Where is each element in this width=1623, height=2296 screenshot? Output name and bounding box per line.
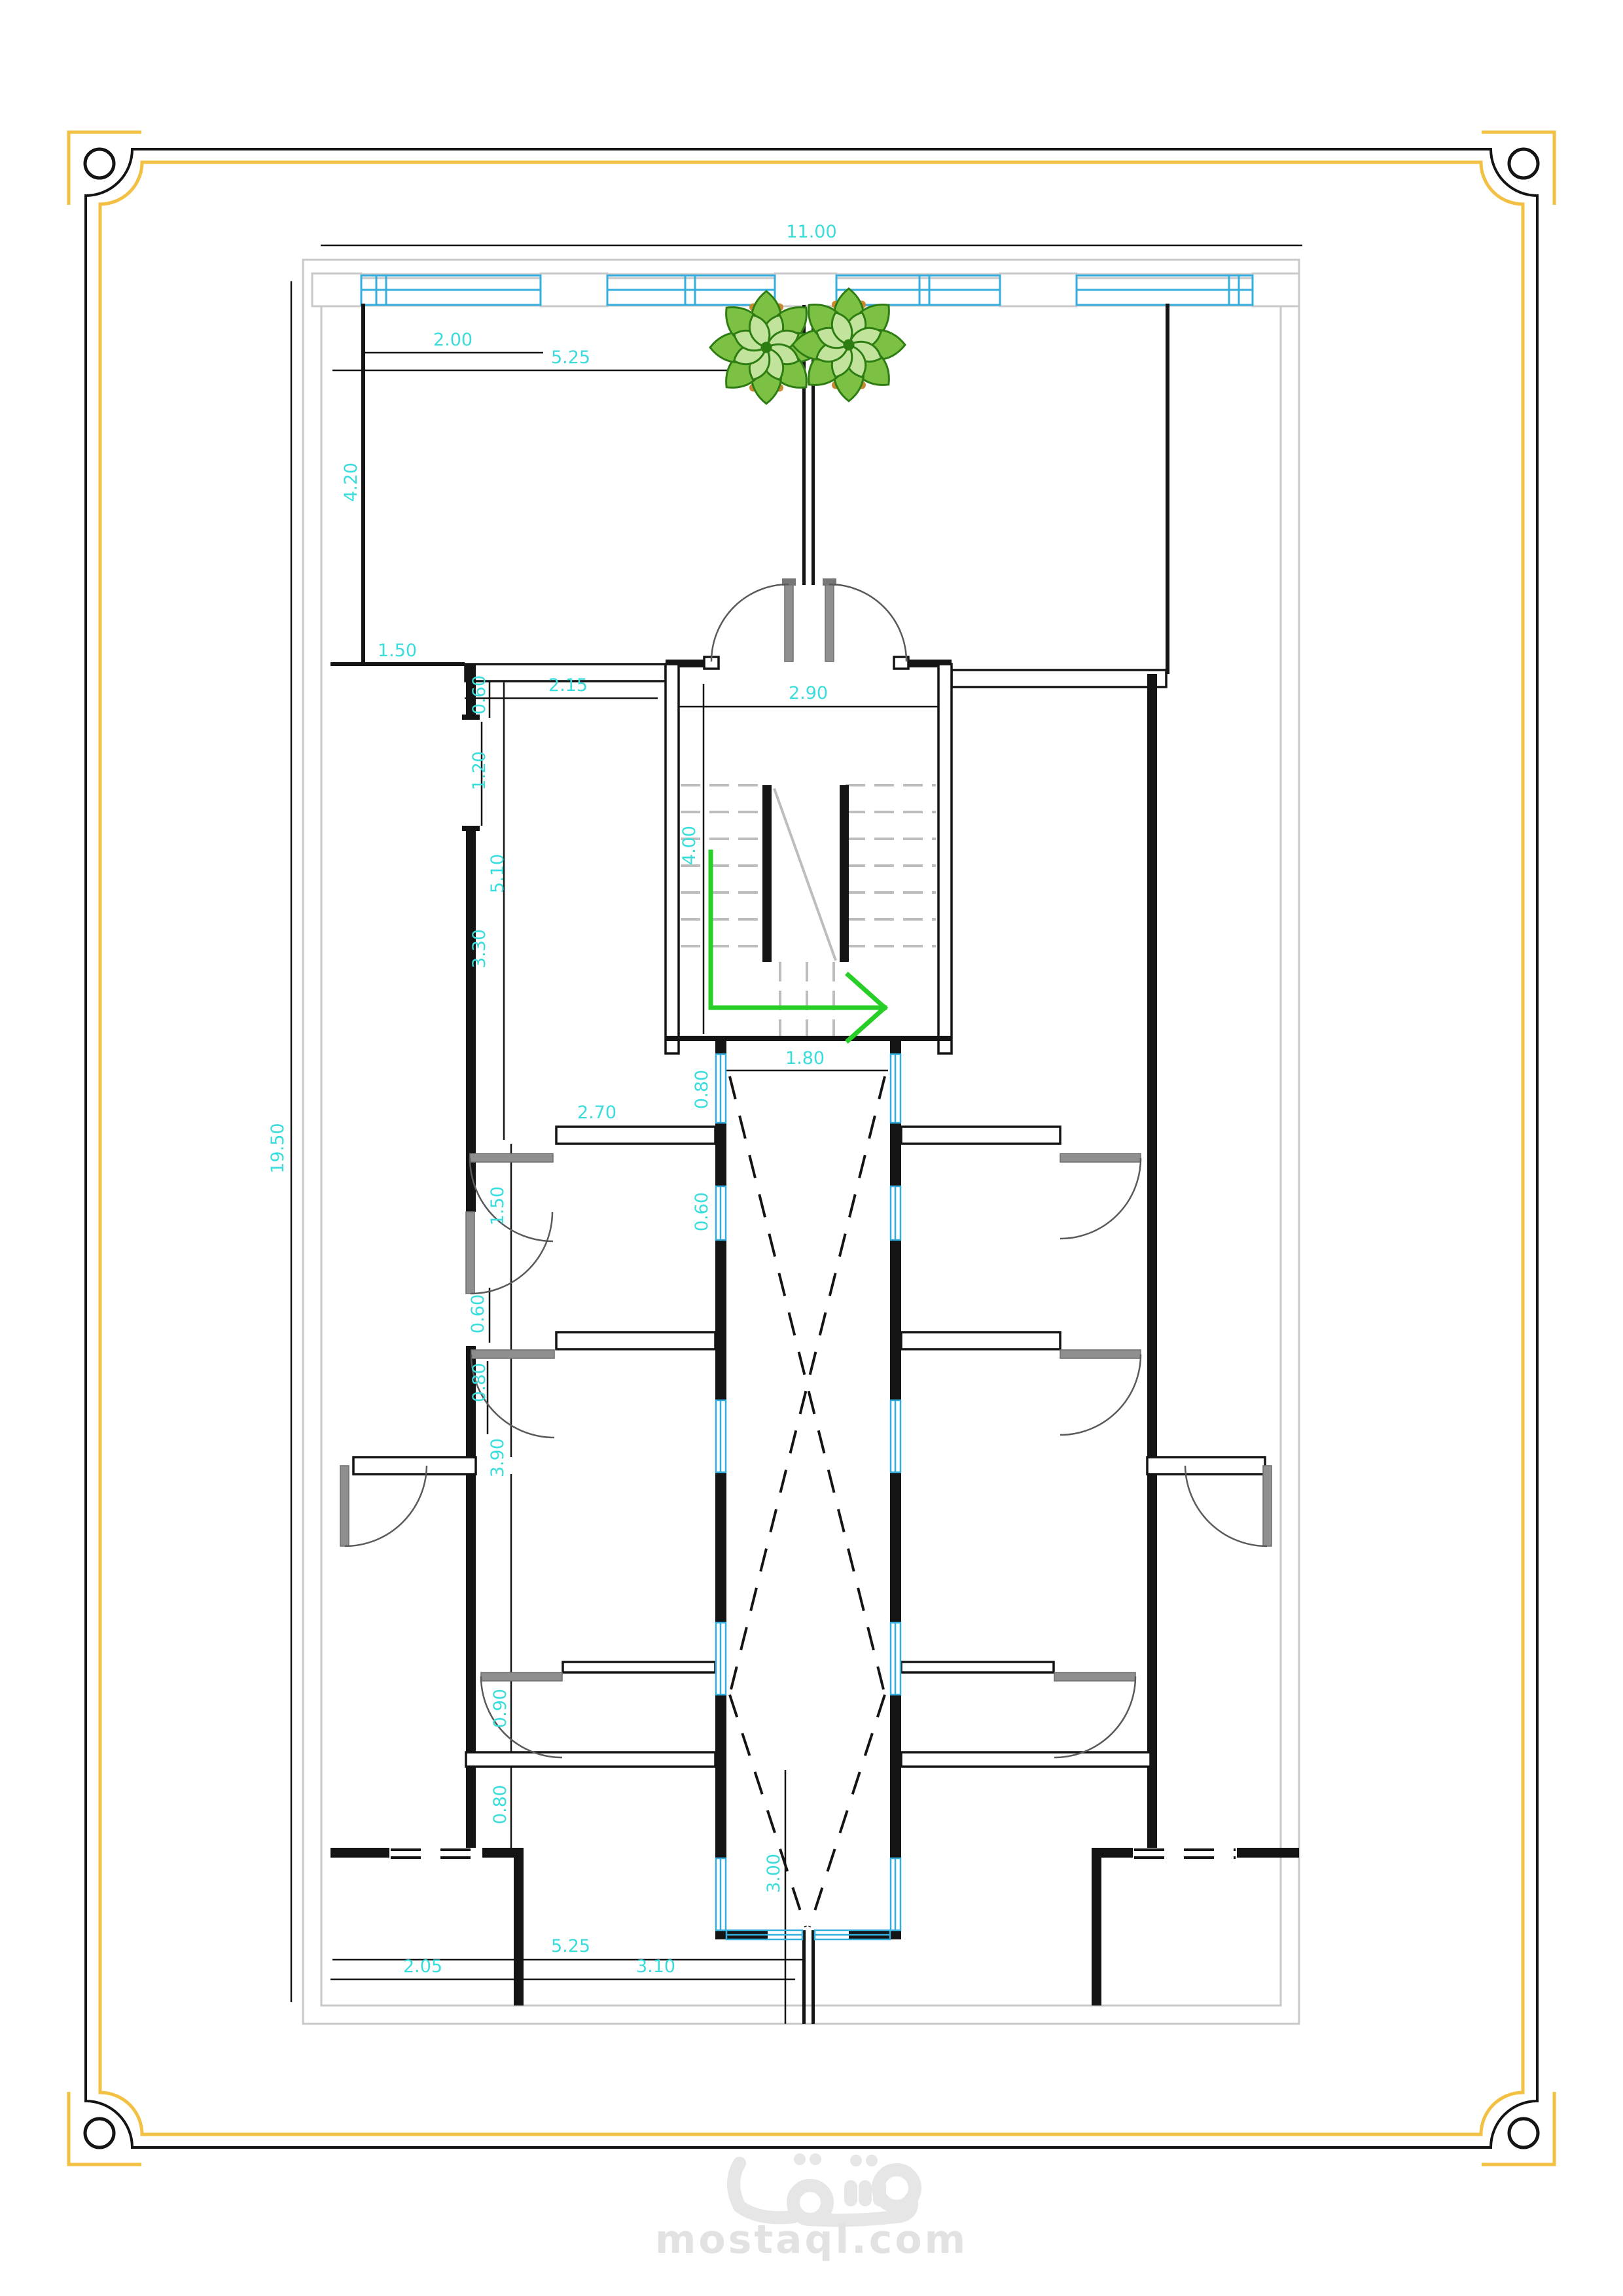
plant — [793, 289, 905, 401]
wall-pier — [312, 274, 361, 306]
dimension-label: 0.60 — [692, 1192, 712, 1231]
dimension-label: 3.30 — [469, 929, 490, 968]
shaft-vents — [716, 1054, 901, 1939]
stair-void-rail-right — [840, 785, 849, 962]
dimension-label: 19.50 — [268, 1123, 288, 1173]
stair-void-rail-left — [762, 785, 772, 962]
border-gold-corner-tl — [69, 132, 141, 205]
dimension-label: 5.25 — [551, 347, 590, 368]
dimension-label: 1.80 — [785, 1048, 825, 1069]
entrance-double-door — [711, 578, 906, 662]
dimension-label: 3.00 — [764, 1854, 784, 1893]
dimension-label: 0.80 — [490, 1785, 510, 1824]
watermark-site-text: mostaql.com — [0, 2217, 1623, 2263]
dimension-label: 2.90 — [789, 683, 828, 703]
wall-pier — [541, 274, 607, 306]
stair-break-line — [774, 788, 836, 961]
staircase — [681, 785, 936, 1036]
dimension-label: 2.70 — [577, 1103, 616, 1123]
dimension-labels: 11.002.005.251.502.152.901.802.705.252.0… — [268, 222, 837, 1977]
interior-door — [466, 1154, 562, 1757]
mostaql-arabic-logo-icon — [734, 2153, 915, 2220]
interior-door — [1054, 1154, 1141, 1757]
exterior-side-door — [340, 1466, 1272, 1546]
floor-plan-canvas: 11.002.005.251.502.152.901.802.705.252.0… — [0, 0, 1623, 2296]
dimension-label: 1.50 — [378, 641, 417, 661]
dimension-label: 1.50 — [488, 1186, 508, 1226]
dimension-label: 11.00 — [786, 222, 836, 242]
dimension-label: 0.80 — [469, 1363, 490, 1402]
border-corner-ring-bl — [85, 2119, 114, 2147]
walls — [330, 304, 1299, 2024]
border-gold-corner-tr — [1482, 132, 1554, 205]
dimension-label: 0.90 — [490, 1689, 510, 1728]
dimension-label: 3.90 — [488, 1438, 508, 1477]
dimension-label: 0.80 — [692, 1070, 712, 1109]
border-gold-corner-bl — [69, 2092, 141, 2164]
dimension-label: 3.10 — [636, 1956, 675, 1977]
border-corner-ring-tl — [85, 149, 114, 178]
dimension-label: 5.10 — [488, 854, 508, 893]
dimension-label: 5.25 — [551, 1936, 590, 1956]
dimension-label: 1.20 — [469, 751, 490, 790]
dimension-label: 0.60 — [469, 675, 490, 715]
wall-pier — [1253, 274, 1299, 306]
light-well-x — [730, 1076, 885, 1927]
dimension-label: 2.05 — [403, 1956, 442, 1977]
border-corner-ring-br — [1509, 2119, 1538, 2147]
dimension-label: 4.20 — [341, 463, 361, 502]
dimension-label: 0.60 — [468, 1294, 488, 1333]
dimension-label: 2.15 — [548, 675, 588, 696]
border-gold-corner-br — [1482, 2092, 1554, 2164]
border-corner-ring-tr — [1509, 149, 1538, 178]
wall-pier — [775, 274, 836, 306]
dimension-label: 2.00 — [433, 330, 473, 350]
wall-pier — [1000, 274, 1077, 306]
dimension-label: 4.00 — [679, 826, 700, 865]
